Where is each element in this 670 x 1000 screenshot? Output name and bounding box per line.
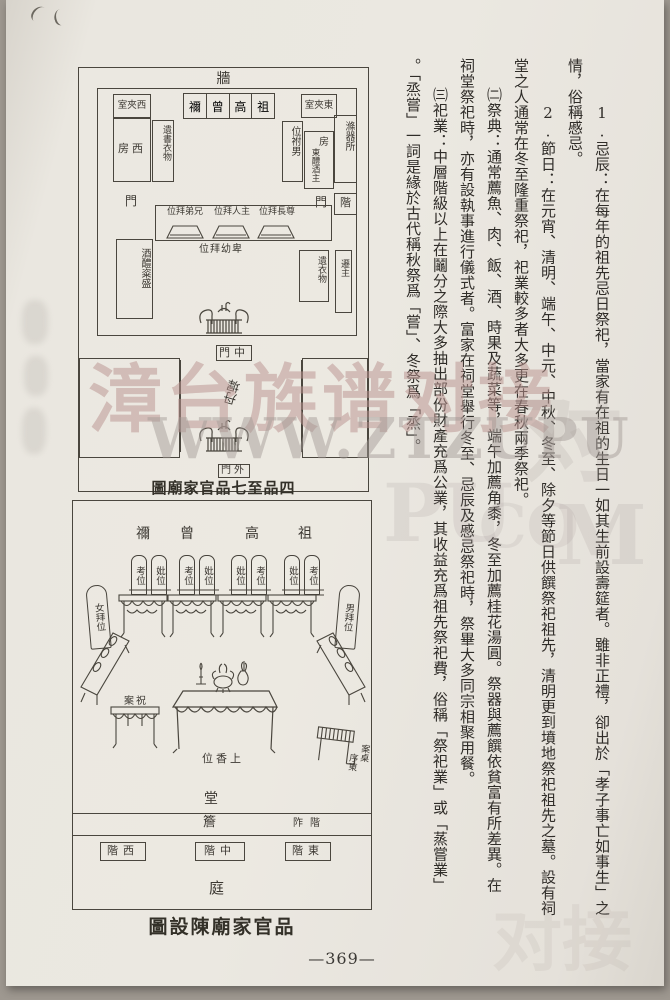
shrine-cell-greatgreatgrandfather: 高 [230,94,253,118]
book-page: 牆 室夾西 禰 曾 高 祖 室夾東 房西 遺書衣物 位祔男 房 東醴酒主 滌器所… [6,0,664,986]
text-column: 1.忌辰：在每年的祖先忌日祭祀，當家有在祖的生日一如其生前設壽筵者。雖非正禮，卻… [588,58,615,946]
shrine-row: 禰 曾 高 祖 [183,93,275,119]
shrine-furnishing-diagram: 禰 曾 高 祖 考位 妣位 考位 妣位 妣位 考位 妣位 考位 女拜位 男拜位 [72,500,372,910]
female-bow-stele: 女拜位 [85,584,111,650]
altar-table [119,595,167,637]
text-column: ㈡祭典：通常薦魚、肉、飯、酒、時果及蔬菜等，端午加薦角黍，冬至加薦桂花湯圓。祭器… [480,58,507,946]
text-column: 2.節日：在元宵、清明、端午、中元、中秋、冬至、除夕等節日供饌祭祀祖先，清明更到… [534,58,561,946]
ancestor-tablet: 考位 [131,555,147,595]
east-room-label: 房 [306,133,332,148]
shrine-cell-father: 禰 [184,94,207,118]
porch-steps-label: 阼階 [293,818,327,829]
handwritten-mark [29,3,50,25]
gate-corridor [180,360,302,452]
prayer-table-drawing [111,707,159,748]
text-column: ㈢祀業：中層階級以上在鬮分之際大多抽出部份財產充爲公業，其收益充爲祖先祭祀費，俗… [426,58,453,946]
west-steps-box: 階西 [100,842,146,861]
west-storage-label: 遺書衣物 [153,125,173,161]
ancestor-tablet: 考位 [251,555,267,595]
eaves-line [73,813,371,814]
body-text: 1.忌辰：在每年的祖先忌日祭祀，當家有在祖的生日一如其生前設壽筵者。雖非正禮，卻… [389,58,615,946]
hall-label: 堂 [204,792,218,807]
temple-floorplan-diagram: 牆 室夾西 禰 曾 高 祖 室夾東 房西 遺書衣物 位祔男 房 東醴酒主 滌器所… [78,67,369,492]
east-wing [302,358,368,458]
text-column: 情，俗稱慼忌。 [561,58,588,946]
vessel-washing-label: 滌器所 [335,121,356,151]
east-step-cell: 階 [334,193,357,215]
ancestor-tablet: 妣位 [231,555,247,595]
southwest-storage: 酒醴粢盛 [116,239,153,319]
flower-vase-icon [238,661,248,685]
wall-label: 牆 [79,72,368,87]
text-column: 祠堂祭祀時，亦有設執事進行儀式者。富家在祠堂舉行冬至、忌辰及慼忌祭祀時，祭畢大多… [453,58,480,946]
altar-table [168,595,216,637]
prayer-table-label: 案祝 [113,696,159,707]
male-bow-stele: 男拜位 [334,584,360,650]
female-bow-label: 女拜位 [90,602,106,632]
text-column: 。「烝嘗」一詞是緣於古代稱秋祭爲「嘗」、冬祭爲「烝」。 [399,58,426,946]
master-bow-position: 位拜人主 [212,208,252,218]
brothers-bow-position: 位拜弟兄 [165,208,205,218]
southwest-storage-label: 酒醴粢盛 [117,248,152,288]
ancestor-tablet: 考位 [304,555,320,595]
southeast-storage: 遺衣物 [299,250,329,302]
tablet-transfer-store: 遷主 [335,250,352,313]
head-grandfather: 祖 [295,527,315,542]
west-side-chamber: 室夾西 [113,94,151,118]
west-door-label: 門 [125,195,137,208]
floorplan-caption: 圖廟家官品七至品四 [78,477,369,498]
east-attached-positions: 位祔男 [282,121,303,182]
center-steps-box: 階中 [195,842,245,861]
shrine-cell-greatgrandfather: 曾 [207,94,230,118]
ancestor-tablet: 妣位 [151,555,167,595]
incense-table-drawing [173,691,277,753]
west-wing [79,358,180,458]
ancestor-tablet: 妣位 [199,555,215,595]
furnishing-caption: 圖設陳廟家官品 [72,912,372,939]
text-column: 堂之人通常在冬至隆重祭祀，祀業較多者大多更在春秋兩季祭祀。 [507,58,534,946]
candlestick-icon [196,663,206,684]
elders-bow-position: 位拜長尊 [257,208,297,218]
ancestor-tablet: 考位 [179,555,195,595]
east-attached-label: 位祔男 [283,126,302,156]
middle-gate-box: 門中 [216,345,252,361]
head-greatgrandfather: 曾 [177,527,197,542]
southeast-storage-label: 遺衣物 [300,256,328,283]
male-bow-label: 男拜位 [339,602,355,632]
west-room: 房西 [113,118,151,182]
outer-gate-box: 門外 [218,464,250,478]
terrace-line [73,835,371,836]
incense-burner-icon [212,664,233,693]
altar-table [268,595,316,637]
bleed-through-smudge [24,356,48,396]
eaves-label: 簷 [203,816,216,830]
vessel-washing-place: 滌器所 [334,115,357,183]
east-bench-label-left: 序東 [345,752,357,771]
ancestor-tablet: 妣位 [284,555,300,595]
handwritten-mark [52,7,70,27]
tablet-transfer-label: 遷主 [336,259,351,277]
shrine-cell-grandfather: 祖 [252,94,274,118]
head-father: 禰 [133,527,153,542]
bleed-through-smudge [22,408,46,454]
west-storage: 遺書衣物 [152,120,174,182]
east-bench-label-right: 案桌 [357,743,369,762]
head-greatgreatgrandfather: 高 [242,527,262,542]
east-room-note: 東醴酒主 [309,148,321,182]
incense-position-label: 位香上 [193,753,253,765]
page-number: —369— [242,950,442,968]
east-room: 房 東醴酒主 [304,131,334,189]
bleed-through-smudge [22,300,48,344]
altar-table [218,595,266,637]
east-side-chamber: 室夾東 [301,94,337,118]
court-label: 庭 [209,880,224,897]
scanned-book-photo: { "page": { "number": "—369—" }, "waterm… [0,0,670,1000]
east-steps-box: 階東 [285,842,331,861]
juniors-bow-position: 位拜幼卑 [197,244,245,255]
